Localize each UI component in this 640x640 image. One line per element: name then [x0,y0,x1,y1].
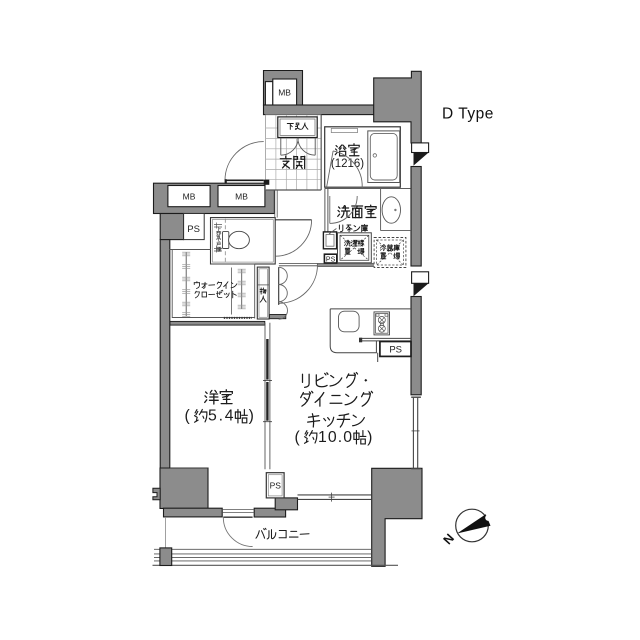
svg-text:MB: MB [183,191,196,201]
svg-text:MB: MB [235,191,248,201]
svg-text:(: ( [295,429,301,446]
svg-text:): ) [249,408,254,425]
svg-text:PS: PS [389,345,402,356]
svg-text:(: ( [185,408,191,425]
svg-text:5.4: 5.4 [208,408,234,425]
svg-text:PS: PS [270,481,282,491]
svg-text:(1216): (1216) [331,158,364,170]
svg-text:): ) [367,429,372,446]
svg-text:MB: MB [278,87,291,97]
svg-text:PS: PS [187,224,200,235]
svg-text:D Type: D Type [442,106,494,123]
svg-text:10.0: 10.0 [318,429,352,446]
svg-text:PS: PS [326,256,336,263]
